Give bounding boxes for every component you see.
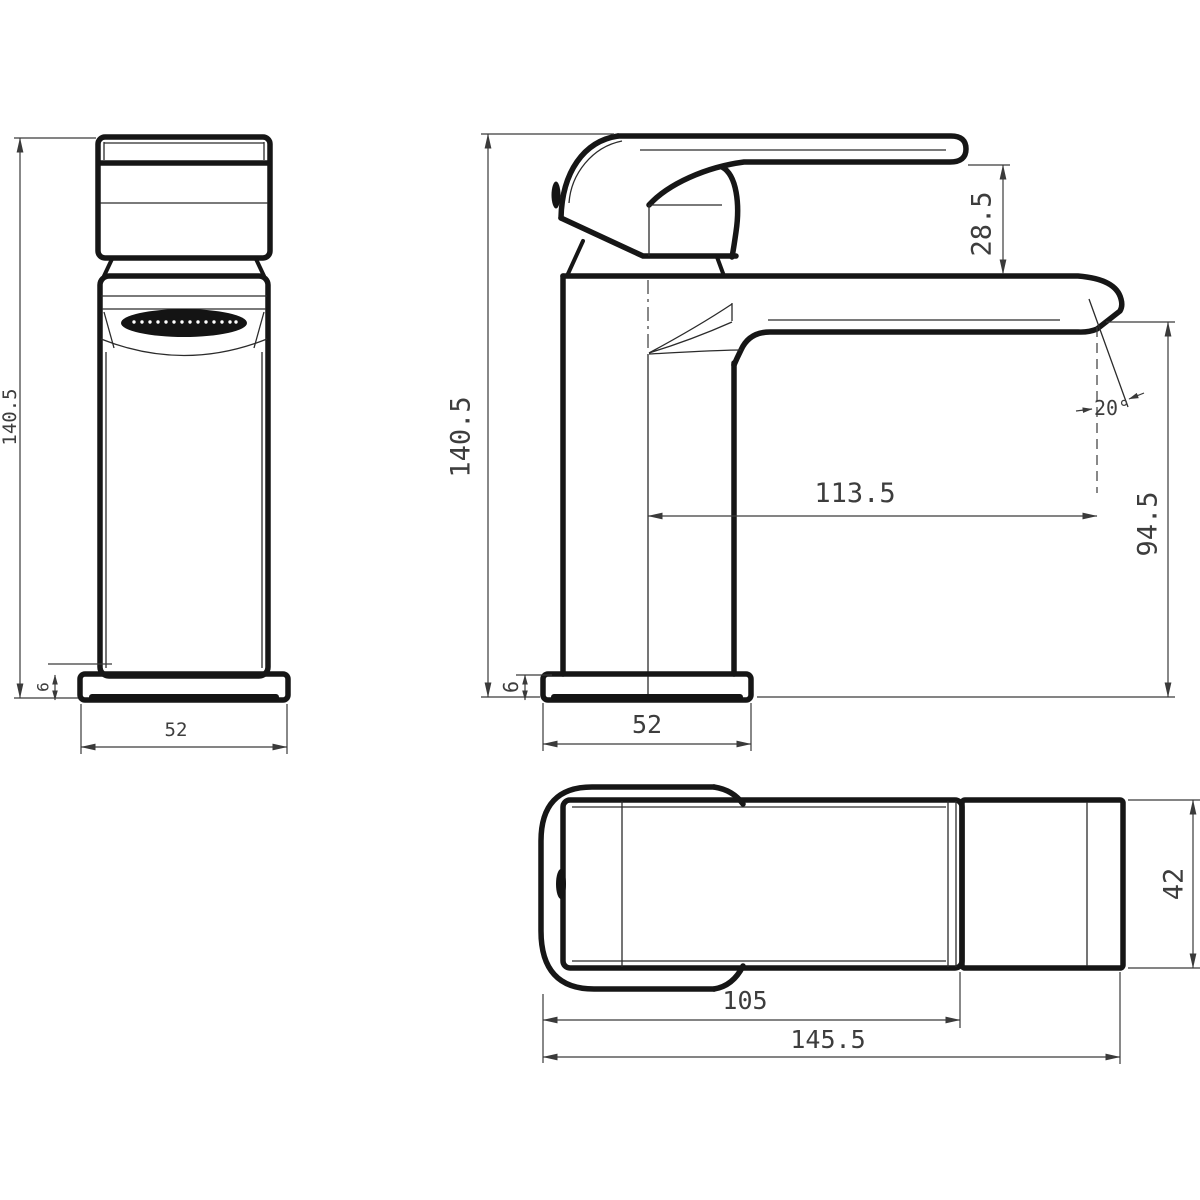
dim-spout-reach-group: 113.5 [648,478,1097,516]
dim-outlet-height: 94.5 [1133,491,1164,556]
dim-handle-to-spout: 28.5 [967,191,998,256]
plan-body-inner-lines [572,801,956,967]
dim-outlet-height-group: 94.5 [757,322,1175,697]
plan-handle-loop-ends [714,787,743,989]
dim-plan-width-group: 42 [1128,800,1200,968]
plan-spout-outline [962,800,1123,968]
side-lever-outline [618,136,966,205]
dim-plan-width: 42 [1159,868,1190,901]
dim-spout-angle: 20° [1094,396,1130,420]
front-handle-band-inner [104,142,264,160]
side-waterway-curves [649,303,741,354]
dim-spout-reach: 113.5 [814,478,895,509]
side-lever-front-curve [561,136,618,218]
dim-front-height: 140.5 [0,388,21,445]
dim-side-height-group: 140.5 [446,134,615,697]
front-body-lines [101,296,267,309]
dim-plan-total-length-group: 145.5 [543,972,1120,1064]
dim-front-base-width: 52 [165,719,188,741]
front-view: 140.5 6 52 [0,137,288,754]
dim-handle-to-spout-group: 28.5 [967,165,1011,274]
dim-plan-total-length: 145.5 [790,1025,865,1054]
side-lever-inner-curve [569,141,622,203]
plan-handle-loop [541,787,714,989]
dim-side-base-width-group: 52 [543,703,751,751]
side-cartridge-lines [649,205,722,256]
front-base-gasket [89,694,279,701]
front-spout-lip-curve [101,339,267,356]
plan-body-outline [563,800,962,968]
dim-front-height-group: 140.5 [0,138,96,698]
side-base-gasket [551,694,743,701]
drawing-svg: 140.5 6 52 [0,0,1200,1200]
dim-side-base-height: 6 [499,681,523,693]
plan-view: 105 145.5 42 [541,787,1200,1064]
side-set-screw [552,182,561,209]
front-body-inner-edges [106,352,262,668]
front-handle-outline [98,137,270,258]
dim-spout-angle-group: 20° [1076,299,1144,493]
technical-drawing: 140.5 6 52 [0,0,1200,1200]
side-view: 140.5 28.5 20° 113.5 94.5 [446,134,1176,751]
plan-set-screw [556,869,566,899]
side-cartridge-right [722,167,738,257]
dim-front-base-height: 6 [34,682,53,692]
dim-side-base-width: 52 [632,710,662,739]
dim-plan-body-length-group: 105 [543,972,960,1063]
dim-plan-body-length: 105 [722,986,767,1015]
front-aerator [121,309,247,337]
dim-front-base-width-group: 52 [81,704,287,754]
dim-side-height: 140.5 [446,396,477,477]
